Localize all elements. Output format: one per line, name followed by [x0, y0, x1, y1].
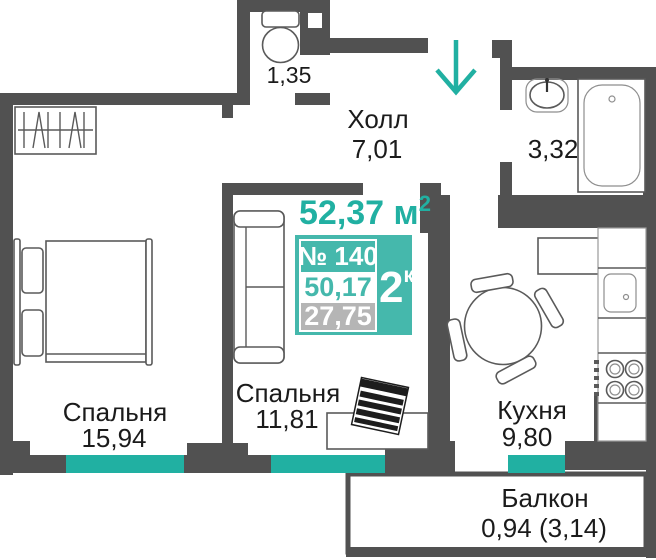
- toilet-icon: [262, 11, 299, 63]
- hall-area: 7,01: [352, 134, 403, 164]
- floor-plan: Холл 7,01 1,35 3,32 Спальня 15,94 Спальн…: [0, 0, 656, 560]
- wall: [0, 93, 13, 475]
- wall: [428, 195, 450, 475]
- chair-icon: [352, 378, 409, 435]
- kitchen-cabinet-icon: [538, 238, 600, 274]
- unit-rooms-count: 2: [379, 263, 403, 312]
- unit-number: № 140: [298, 241, 378, 271]
- kitchen-name: Кухня: [497, 395, 567, 425]
- wall: [646, 228, 656, 558]
- bedroom-middle-area: 11,81: [255, 404, 318, 434]
- unit-badge: № 140 50,17 27,75 2к: [295, 235, 414, 335]
- wall: [222, 183, 233, 460]
- wall: [187, 443, 248, 457]
- wall: [565, 441, 656, 470]
- dining-table-icon: [465, 288, 542, 365]
- total-area-sup: 2: [419, 191, 431, 216]
- unit-rooms-suffix: к: [403, 264, 414, 287]
- entrance-arrow-icon: [437, 40, 475, 92]
- total-area-value: 52,37 м: [299, 194, 419, 232]
- balcony-name: Балкон: [501, 483, 588, 513]
- unit-secondary-area: 27,75: [304, 301, 372, 331]
- wardrobe-icon: [15, 107, 96, 154]
- kitchen-area: 9,80: [502, 422, 553, 452]
- window: [271, 455, 385, 473]
- wall: [498, 195, 656, 228]
- bedroom-left-area: 15,94: [81, 423, 146, 453]
- window: [66, 455, 184, 473]
- window: [508, 455, 565, 473]
- floor-plan-drawing: Холл 7,01 1,35 3,32 Спальня 15,94 Спальн…: [0, 0, 656, 560]
- wall: [222, 103, 233, 118]
- bed-icon: [14, 239, 152, 365]
- sofa-icon: [234, 211, 284, 363]
- bathtub-icon: [578, 79, 645, 192]
- balcony-area: 0,94 (3,14): [481, 513, 607, 543]
- bathroom-area: 3,32: [528, 134, 579, 164]
- total-area: 52,37 м2: [299, 191, 431, 232]
- windows: [66, 455, 565, 473]
- wall: [0, 93, 250, 105]
- wall: [500, 40, 512, 110]
- unit-living-area: 50,17: [304, 272, 372, 302]
- wall: [295, 93, 330, 105]
- hall-name: Холл: [347, 104, 408, 134]
- wall: [330, 38, 428, 53]
- bathroom-sink-icon: [526, 78, 568, 112]
- wall: [0, 455, 66, 473]
- wall: [237, 0, 250, 105]
- wc-area: 1,35: [267, 62, 312, 88]
